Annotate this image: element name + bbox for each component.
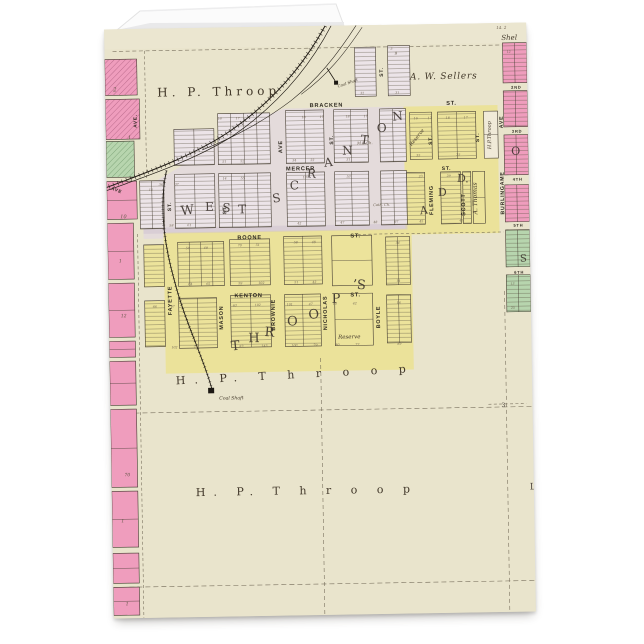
map-label: 65 bbox=[206, 282, 210, 286]
map-label: 31 bbox=[346, 157, 350, 161]
map-label: 101 bbox=[287, 302, 293, 306]
map-label: Shel bbox=[501, 34, 517, 42]
map-label: 10 bbox=[120, 214, 127, 220]
map-label: 51 bbox=[256, 243, 260, 247]
map-label: Coal Shaft bbox=[219, 395, 244, 401]
map-label: 3 bbox=[501, 402, 505, 409]
map-label: 36 bbox=[159, 183, 163, 187]
map-label: 143 bbox=[261, 344, 267, 348]
map-label: ST. bbox=[167, 202, 173, 212]
map-block bbox=[109, 341, 135, 357]
map-label: 2ND bbox=[511, 85, 521, 90]
map-label: A. Thomas bbox=[472, 182, 480, 215]
map-block bbox=[144, 245, 165, 287]
map-label: FLEMING bbox=[429, 185, 435, 215]
map-label: 12 bbox=[121, 313, 127, 319]
map-label: L bbox=[530, 482, 536, 492]
map-label: 102 bbox=[258, 281, 264, 285]
map-label: S bbox=[222, 201, 231, 215]
map-label: 55 bbox=[241, 176, 245, 180]
map-label: FAYETTE bbox=[167, 286, 173, 315]
map-label: ’S bbox=[352, 277, 366, 293]
map-block bbox=[284, 236, 323, 285]
map-label: 35 bbox=[416, 153, 420, 157]
map-block bbox=[179, 298, 218, 349]
map-label: 54 bbox=[396, 241, 400, 245]
map-label: 25 bbox=[455, 153, 460, 157]
map-label: O bbox=[511, 145, 520, 158]
map-label: 59 bbox=[238, 281, 242, 285]
product-photo: H. P. ThroopA. W. SellersShel14. 2BRACKE… bbox=[0, 0, 644, 644]
map-label: 102 bbox=[171, 345, 177, 349]
card-front: H. P. ThroopA. W. SellersShel14. 2BRACKE… bbox=[104, 23, 536, 619]
map-block bbox=[387, 45, 410, 95]
map-label: 34 bbox=[292, 158, 296, 162]
map-label: 51 bbox=[222, 160, 226, 164]
map-label: 1 bbox=[126, 601, 129, 607]
map-label: T bbox=[238, 202, 246, 216]
map-label: 6TH bbox=[514, 270, 524, 275]
map-label: 13 bbox=[510, 282, 514, 286]
map-label: 100 bbox=[291, 343, 297, 347]
map-block bbox=[505, 185, 530, 222]
map-label: 1 bbox=[119, 258, 122, 264]
map-label: 14. 2 bbox=[496, 25, 507, 30]
map-label: SCOTT bbox=[461, 193, 467, 215]
map-label: 58 bbox=[169, 223, 173, 227]
map-label: 32 bbox=[360, 91, 364, 95]
map-svg: H. P. ThroopA. W. SellersShel14. 2BRACKE… bbox=[104, 23, 536, 619]
map-label: Reserve bbox=[337, 334, 361, 340]
map-label: BOYLE bbox=[376, 306, 382, 329]
map-label: 83 bbox=[239, 344, 243, 348]
map-label: 48 bbox=[311, 240, 316, 244]
map-label: 89 bbox=[397, 342, 401, 346]
map-label: 45 bbox=[418, 219, 423, 223]
map-label: H bbox=[248, 331, 260, 346]
map-label: 19 bbox=[303, 175, 307, 179]
map-label: BURLINGAME bbox=[500, 171, 507, 214]
map-label: N bbox=[342, 143, 353, 157]
map-label: 51 bbox=[294, 280, 298, 284]
map-block bbox=[335, 171, 370, 226]
map-label: 102 bbox=[255, 303, 261, 307]
map-label: 31 bbox=[395, 91, 399, 95]
map-block bbox=[332, 235, 373, 286]
map-label: O bbox=[308, 307, 320, 323]
map-label: 42 bbox=[352, 301, 357, 305]
map-block bbox=[174, 129, 215, 166]
map-label: A. W. Sellers bbox=[409, 71, 478, 82]
map-block bbox=[178, 242, 225, 287]
map-label: Cath. Ch. bbox=[373, 203, 390, 207]
map-label: T bbox=[360, 132, 370, 147]
map-label: 72 bbox=[355, 342, 359, 346]
map-label: 48 bbox=[372, 220, 377, 224]
map-label: 70 bbox=[124, 472, 130, 478]
map-label: 66 bbox=[153, 305, 157, 309]
map-label: ST. bbox=[446, 101, 457, 107]
map-label: 5TH bbox=[513, 223, 523, 228]
map-label: 49 bbox=[203, 246, 208, 250]
map-label: ST. bbox=[350, 292, 361, 298]
map-label: 52 bbox=[240, 159, 244, 163]
map-label: O bbox=[377, 121, 387, 135]
map-label: 1 bbox=[128, 135, 131, 141]
map-label: C bbox=[290, 178, 299, 192]
map-label: 3RD bbox=[512, 129, 522, 134]
map-label: ST. bbox=[329, 135, 335, 145]
map-label: 16 bbox=[397, 301, 401, 305]
map-label: 53 bbox=[347, 174, 351, 178]
map-block bbox=[354, 47, 376, 96]
map-label: 79 bbox=[313, 343, 317, 347]
map-block bbox=[112, 491, 139, 547]
map-block bbox=[502, 43, 527, 83]
map-label: H. P. Throop bbox=[157, 84, 280, 100]
map-label: 3 bbox=[390, 47, 392, 51]
map-label: 33 bbox=[310, 158, 314, 162]
map-label: W bbox=[180, 203, 196, 220]
map-label: BOONE bbox=[237, 235, 262, 241]
map-block bbox=[105, 59, 138, 96]
map-label: 64 bbox=[188, 282, 192, 286]
map-label: ST. bbox=[475, 132, 481, 142]
map-label: 15 bbox=[149, 188, 153, 192]
map-block bbox=[503, 91, 528, 127]
map-label: NICHOLAS bbox=[323, 296, 330, 331]
map-block bbox=[107, 223, 134, 279]
map-block bbox=[110, 361, 137, 405]
map-label: 16 bbox=[218, 117, 222, 121]
map-label: ST. bbox=[350, 233, 361, 239]
map-label: 18 bbox=[302, 115, 306, 119]
map-label: 80 bbox=[335, 343, 339, 347]
map-label: 43 bbox=[311, 280, 316, 284]
map-label: 10 bbox=[333, 302, 337, 306]
map-label: AVE. bbox=[133, 114, 138, 128]
map-label: 18 bbox=[346, 114, 350, 118]
map-label: ST. bbox=[428, 135, 434, 145]
map-label: AVE bbox=[499, 116, 505, 129]
map-block bbox=[108, 283, 135, 337]
map-label: E bbox=[205, 200, 214, 214]
map-block bbox=[106, 141, 135, 177]
map-label: D bbox=[438, 186, 447, 199]
map-block bbox=[113, 587, 139, 615]
map-label: BRACKEN bbox=[310, 103, 344, 110]
map-label: 70 bbox=[238, 243, 242, 247]
map-label: D. bbox=[457, 172, 470, 186]
map-label: AVE bbox=[278, 140, 284, 153]
map-label: 73 bbox=[193, 345, 197, 349]
map-block bbox=[381, 171, 408, 225]
map-label: O bbox=[287, 314, 298, 329]
map-label: 2 bbox=[112, 87, 117, 93]
map-label: 63 bbox=[233, 303, 237, 307]
map-label: 58 bbox=[294, 240, 298, 244]
map-label: H.P.Throop bbox=[487, 120, 493, 150]
map-label: 14 bbox=[223, 177, 227, 181]
map-block bbox=[230, 239, 271, 286]
map-label: 1 bbox=[121, 518, 124, 524]
map-label: 61 bbox=[187, 223, 191, 227]
map-label: 50 bbox=[186, 246, 190, 250]
map-label: 16 bbox=[414, 116, 418, 120]
map-label: 29 bbox=[446, 174, 451, 178]
map-label: ST. bbox=[379, 67, 385, 77]
map-label: N bbox=[392, 109, 404, 124]
map-label: ST. bbox=[442, 166, 452, 172]
map-label: 25 bbox=[510, 306, 515, 310]
map-block bbox=[113, 553, 139, 583]
map-label: 12 bbox=[507, 50, 511, 54]
map-label: 4TH bbox=[513, 177, 523, 182]
map-label: S bbox=[520, 254, 527, 265]
map-label: 42 bbox=[296, 221, 301, 225]
map-label: 14 bbox=[396, 279, 400, 283]
map-label: 23 bbox=[418, 174, 423, 178]
map-label: 18 bbox=[446, 116, 450, 120]
map-label: KENTON bbox=[234, 293, 262, 299]
map-label: MASON bbox=[219, 306, 225, 330]
